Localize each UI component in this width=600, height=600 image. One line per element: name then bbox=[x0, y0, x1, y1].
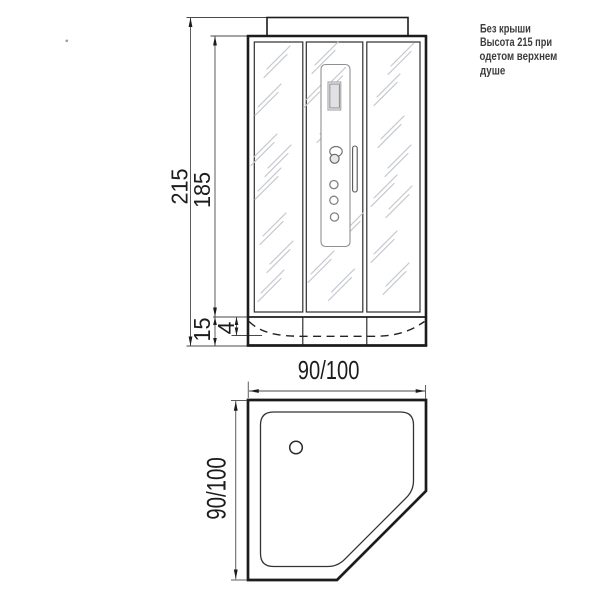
svg-text:одетом верхнем: одетом верхнем bbox=[480, 49, 558, 63]
svg-text:185: 185 bbox=[189, 172, 215, 208]
svg-text:Высота 215 при: Высота 215 при bbox=[480, 35, 552, 49]
svg-text:душе: душе bbox=[480, 63, 506, 77]
svg-text:Без крыши: Без крыши bbox=[480, 22, 531, 36]
svg-text:15: 15 bbox=[189, 318, 215, 342]
svg-text:90/100: 90/100 bbox=[202, 457, 232, 520]
svg-text:4: 4 bbox=[213, 321, 239, 334]
svg-text:90/100: 90/100 bbox=[298, 355, 360, 385]
